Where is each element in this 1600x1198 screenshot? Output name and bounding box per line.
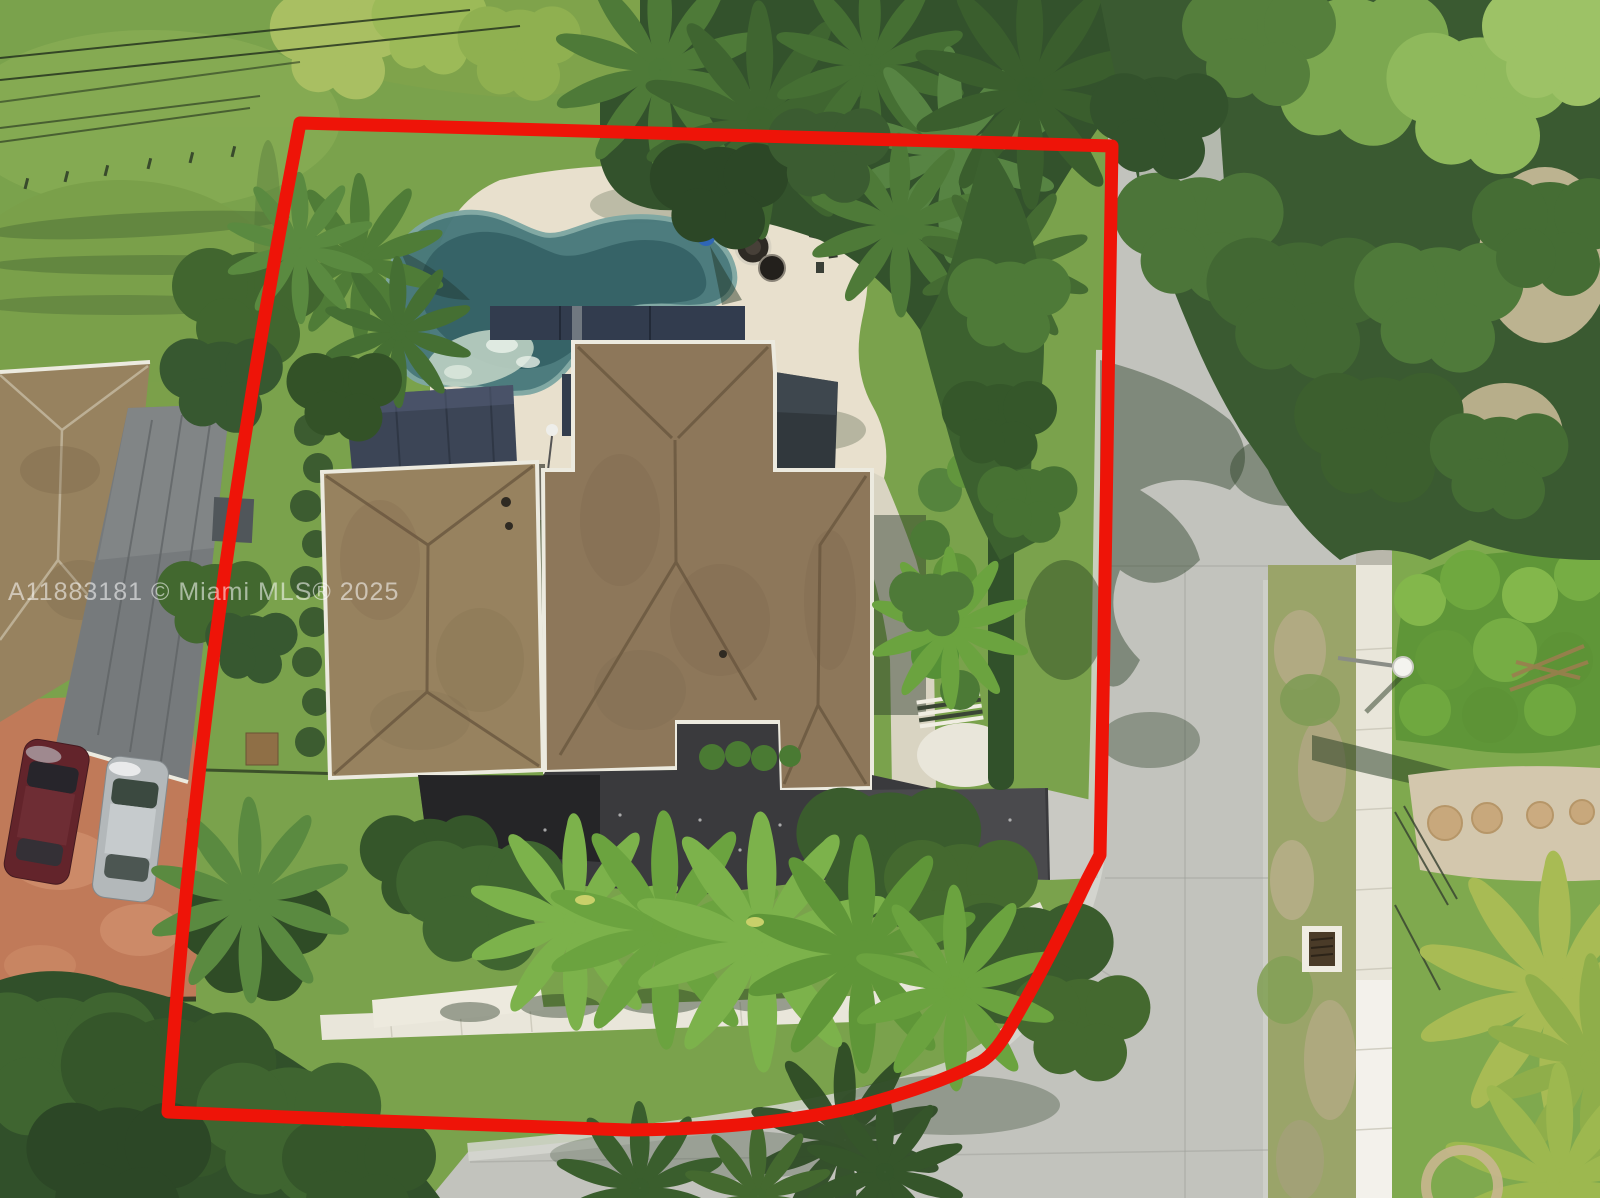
storm-drain: [1302, 926, 1342, 972]
right-sidewalk: [1356, 470, 1392, 1198]
hedge: [1394, 549, 1600, 753]
mls-watermark: A11883181 © Miami MLS® 2025: [8, 578, 399, 606]
flat-roof-top: [490, 306, 745, 340]
aerial-photo-canvas: A11883181 © Miami MLS® 2025: [0, 0, 1600, 1198]
shed-box: [246, 733, 278, 765]
roof-left-wing: [322, 462, 543, 778]
aerial-photo: A11883181 © Miami MLS® 2025: [0, 0, 1600, 1198]
lawn-shadow: [1025, 560, 1105, 680]
